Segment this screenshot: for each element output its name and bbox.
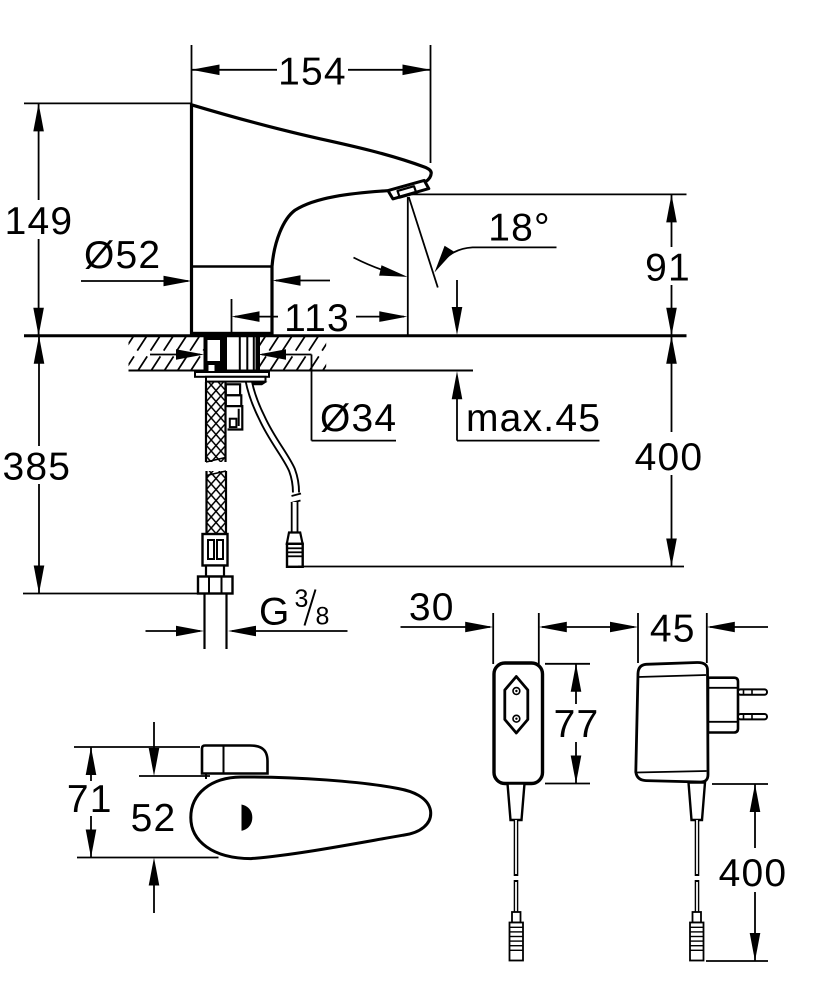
svg-text:77: 77	[554, 703, 600, 746]
svg-text:G: G	[259, 590, 291, 633]
svg-text:18°: 18°	[488, 206, 551, 249]
svg-text:91: 91	[645, 246, 691, 289]
svg-text:71: 71	[67, 778, 113, 821]
svg-text:52: 52	[131, 797, 177, 840]
svg-text:Ø34: Ø34	[320, 397, 397, 440]
svg-text:400: 400	[635, 436, 704, 479]
svg-text:113: 113	[284, 297, 350, 340]
svg-text:45: 45	[650, 607, 696, 650]
svg-text:149: 149	[5, 200, 74, 243]
svg-text:154: 154	[278, 50, 347, 93]
svg-text:8: 8	[316, 602, 330, 630]
svg-text:400: 400	[719, 852, 788, 895]
svg-text:max.45: max.45	[466, 397, 601, 440]
svg-text:3: 3	[295, 585, 309, 613]
svg-text:385: 385	[2, 445, 71, 488]
svg-text:Ø52: Ø52	[84, 234, 161, 277]
svg-text:30: 30	[409, 586, 455, 629]
